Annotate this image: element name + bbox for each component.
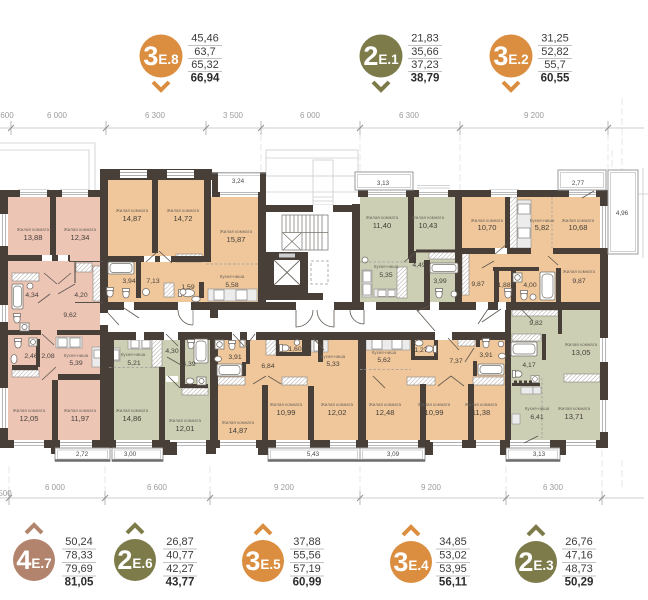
svg-text:37,23: 37,23 — [411, 59, 439, 71]
svg-text:9 200: 9 200 — [524, 111, 545, 120]
svg-text:Жилая комната: Жилая комната — [563, 269, 596, 274]
svg-text:10,43: 10,43 — [418, 221, 437, 230]
svg-text:53,02: 53,02 — [439, 550, 467, 562]
svg-text:Жилая комната: Жилая комната — [270, 402, 303, 407]
svg-text:10,70: 10,70 — [477, 223, 496, 232]
svg-text:79,69: 79,69 — [65, 563, 93, 575]
svg-text:5,58: 5,58 — [225, 282, 238, 289]
svg-text:10,99: 10,99 — [276, 408, 295, 417]
svg-text:12,34: 12,34 — [70, 233, 89, 242]
svg-text:Жилая комната: Жилая комната — [321, 402, 354, 407]
svg-text:Кухня-ниша: Кухня-ниша — [321, 354, 346, 359]
svg-text:11,38: 11,38 — [472, 408, 490, 417]
svg-text:1,88: 1,88 — [497, 282, 510, 289]
svg-text:Жилая комната: Жилая комната — [412, 215, 445, 220]
svg-text:37,88: 37,88 — [293, 536, 321, 548]
svg-text:2,72: 2,72 — [76, 451, 89, 458]
svg-text:Жилая комната: Жилая комната — [369, 402, 402, 407]
svg-text:7,37: 7,37 — [449, 358, 462, 365]
svg-text:Жилая комната: Жилая комната — [418, 402, 451, 407]
svg-text:1,60: 1,60 — [288, 346, 301, 353]
svg-text:35,66: 35,66 — [411, 46, 439, 58]
svg-text:10,68: 10,68 — [568, 223, 587, 232]
svg-text:13,05: 13,05 — [571, 348, 590, 357]
svg-text:Жилая комната: Жилая комната — [558, 406, 591, 411]
svg-text:50,24: 50,24 — [65, 536, 93, 548]
svg-text:5,43: 5,43 — [307, 451, 320, 458]
svg-text:Жилая комната: Жилая комната — [167, 208, 200, 213]
svg-text:14,87: 14,87 — [122, 214, 141, 223]
svg-text:Жилая комната: Жилая комната — [13, 408, 46, 413]
svg-text:78,33: 78,33 — [65, 550, 93, 562]
svg-text:1,59: 1,59 — [181, 284, 194, 291]
svg-text:3,13: 3,13 — [377, 180, 390, 187]
svg-text:4,17: 4,17 — [522, 362, 535, 369]
svg-text:Жилая комната: Жилая комната — [64, 227, 97, 232]
svg-text:500: 500 — [0, 489, 12, 498]
svg-text:6 300: 6 300 — [145, 111, 166, 120]
svg-text:6 000: 6 000 — [45, 483, 66, 492]
svg-text:3,13: 3,13 — [533, 451, 546, 458]
svg-text:52,82: 52,82 — [541, 46, 569, 58]
svg-text:14,86: 14,86 — [122, 414, 141, 423]
svg-text:5,39: 5,39 — [69, 360, 82, 367]
svg-text:14,87: 14,87 — [228, 426, 247, 435]
svg-text:21,83: 21,83 — [411, 33, 439, 45]
svg-text:40,77: 40,77 — [166, 550, 194, 562]
svg-text:6 600: 6 600 — [147, 483, 168, 492]
svg-text:56,11: 56,11 — [439, 577, 468, 589]
svg-text:6,84: 6,84 — [261, 363, 274, 370]
svg-text:15,87: 15,87 — [226, 235, 245, 244]
svg-text:Жилая комната: Жилая комната — [169, 418, 202, 423]
svg-text:60,55: 60,55 — [541, 73, 570, 85]
svg-text:9 200: 9 200 — [274, 483, 295, 492]
svg-text:Жилая комната: Жилая комната — [17, 227, 50, 232]
svg-text:12,05: 12,05 — [19, 414, 38, 423]
svg-text:50,29: 50,29 — [565, 577, 594, 589]
svg-text:11,97: 11,97 — [71, 414, 89, 423]
svg-text:42,27: 42,27 — [166, 563, 194, 575]
svg-text:9,82: 9,82 — [529, 320, 542, 327]
svg-text:Кухня-ниша: Кухня-ниша — [121, 352, 146, 357]
svg-text:13,88: 13,88 — [23, 233, 42, 242]
svg-text:63,7: 63,7 — [194, 46, 215, 58]
svg-text:66,94: 66,94 — [191, 73, 220, 85]
svg-text:11,40: 11,40 — [373, 221, 391, 230]
svg-text:600: 600 — [0, 111, 14, 120]
svg-text:5,62: 5,62 — [377, 357, 390, 364]
svg-text:1,27: 1,27 — [414, 347, 427, 354]
svg-text:3 500: 3 500 — [223, 111, 244, 120]
svg-text:Жилая комната: Жилая комната — [116, 408, 149, 413]
svg-text:Кухня-ниша: Кухня-ниша — [220, 274, 245, 279]
svg-text:12,01: 12,01 — [175, 424, 194, 433]
svg-text:6 000: 6 000 — [300, 111, 321, 120]
svg-text:31,25: 31,25 — [541, 33, 569, 45]
svg-text:47,16: 47,16 — [565, 550, 593, 562]
svg-text:Кухня-ниша: Кухня-ниша — [374, 264, 399, 269]
svg-text:5,82: 5,82 — [535, 223, 550, 232]
svg-text:9,87: 9,87 — [572, 278, 585, 285]
svg-text:45,46: 45,46 — [191, 33, 219, 45]
svg-text:4,96: 4,96 — [616, 210, 629, 217]
svg-text:34,85: 34,85 — [439, 536, 467, 548]
svg-text:4,00: 4,00 — [523, 282, 536, 289]
svg-text:Жилая комната: Жилая комната — [116, 208, 149, 213]
svg-text:9,87: 9,87 — [471, 281, 484, 288]
svg-text:38,79: 38,79 — [411, 73, 440, 85]
svg-text:Жилая комната: Жилая комната — [220, 229, 253, 234]
svg-text:Кухня-ниша: Кухня-ниша — [525, 406, 550, 411]
svg-text:Кухня-ниша: Кухня-ниша — [372, 350, 397, 355]
svg-text:26,76: 26,76 — [565, 536, 593, 548]
svg-text:55,7: 55,7 — [544, 59, 565, 71]
svg-text:12,02: 12,02 — [327, 408, 346, 417]
svg-text:12,48: 12,48 — [375, 408, 394, 417]
svg-text:3,91: 3,91 — [479, 352, 492, 359]
svg-text:57,19: 57,19 — [293, 563, 321, 575]
svg-text:5,35: 5,35 — [379, 272, 392, 279]
svg-text:2,46: 2,46 — [24, 353, 37, 360]
svg-text:43,77: 43,77 — [166, 577, 195, 589]
svg-text:4,30: 4,30 — [165, 348, 178, 355]
svg-text:5,33: 5,33 — [326, 361, 339, 368]
svg-text:4,49: 4,49 — [412, 262, 425, 269]
svg-text:6 300: 6 300 — [543, 483, 564, 492]
svg-text:13,71: 13,71 — [564, 412, 583, 421]
svg-text:10,99: 10,99 — [424, 408, 443, 417]
svg-text:Кухня-ниша: Кухня-ниша — [64, 353, 89, 358]
svg-text:Жилая комната: Жилая комната — [64, 408, 97, 413]
svg-text:48,73: 48,73 — [565, 563, 593, 575]
svg-text:Жилая комната: Жилая комната — [366, 215, 399, 220]
svg-text:9 200: 9 200 — [421, 483, 442, 492]
svg-text:55,56: 55,56 — [293, 550, 321, 562]
svg-text:26,87: 26,87 — [166, 536, 194, 548]
svg-text:60,99: 60,99 — [293, 577, 322, 589]
svg-text:2,08: 2,08 — [41, 353, 54, 360]
svg-text:6 300: 6 300 — [399, 111, 420, 120]
svg-text:81,05: 81,05 — [65, 577, 94, 589]
svg-text:65,32: 65,32 — [191, 59, 219, 71]
svg-text:3,00: 3,00 — [124, 451, 137, 458]
svg-text:4,20: 4,20 — [74, 292, 87, 299]
svg-text:6 000: 6 000 — [47, 111, 68, 120]
svg-text:Жилая комната: Жилая комната — [465, 402, 498, 407]
svg-text:4,34: 4,34 — [25, 292, 38, 299]
svg-text:3,24: 3,24 — [232, 178, 245, 185]
svg-text:5,21: 5,21 — [127, 360, 140, 367]
svg-text:3,09: 3,09 — [387, 451, 400, 458]
svg-text:3,91: 3,91 — [228, 354, 241, 361]
svg-text:3,99: 3,99 — [433, 278, 446, 285]
svg-text:Жилая комната: Жилая комната — [222, 420, 255, 425]
svg-text:9,62: 9,62 — [63, 312, 76, 319]
svg-text:53,95: 53,95 — [439, 563, 467, 575]
svg-text:6,41: 6,41 — [530, 414, 543, 421]
svg-text:2,77: 2,77 — [572, 180, 585, 187]
svg-text:Жилая комната: Жилая комната — [565, 342, 598, 347]
svg-text:3,94: 3,94 — [122, 278, 135, 285]
svg-text:14,72: 14,72 — [173, 214, 192, 223]
svg-text:4,39: 4,39 — [182, 361, 195, 368]
svg-text:7,13: 7,13 — [146, 278, 159, 285]
